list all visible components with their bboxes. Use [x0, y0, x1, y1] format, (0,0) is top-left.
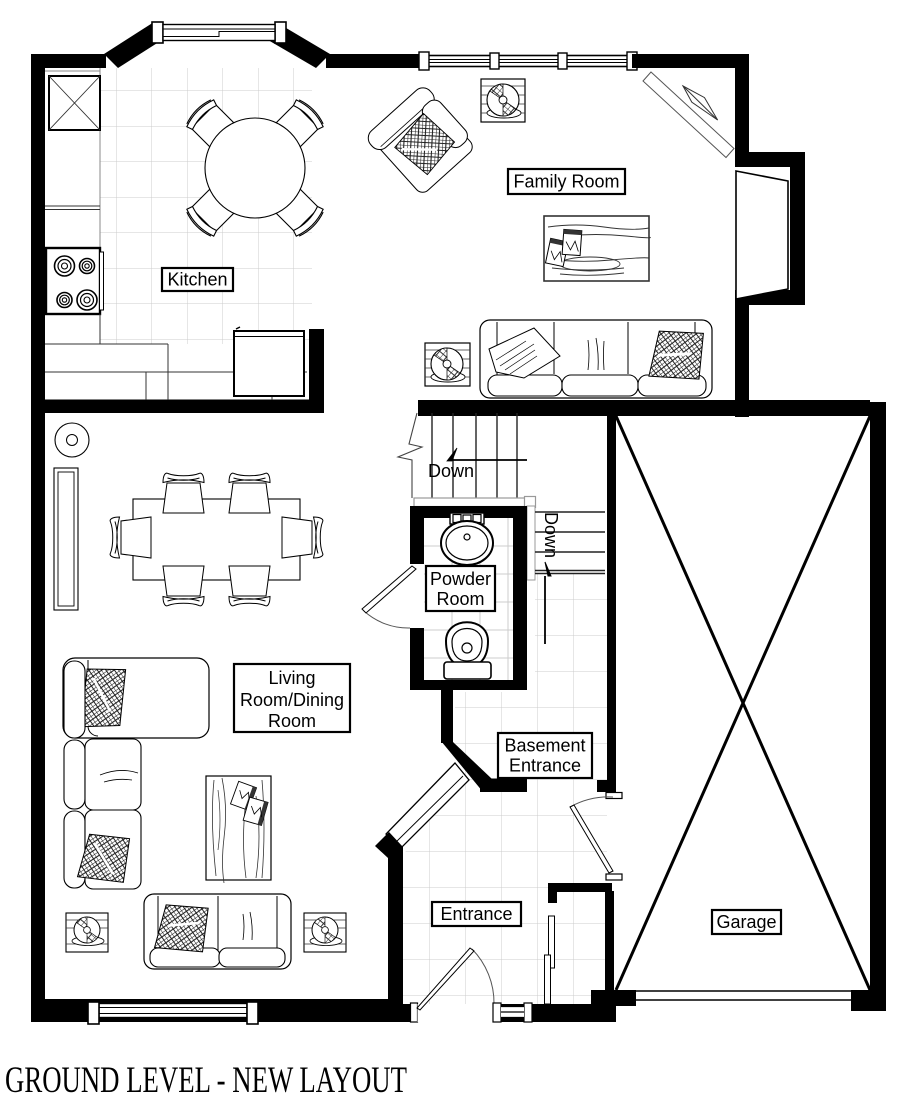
svg-text:Room/Dining: Room/Dining	[240, 690, 344, 710]
svg-text:Down: Down	[428, 461, 474, 481]
svg-text:Family Room: Family Room	[513, 172, 619, 192]
svg-text:Kitchen: Kitchen	[167, 270, 227, 290]
svg-text:Powder: Powder	[430, 569, 491, 589]
svg-text:Basement: Basement	[504, 736, 585, 756]
svg-text:GROUND LEVEL - NEW LAYOUT: GROUND LEVEL - NEW LAYOUT	[5, 1060, 407, 1101]
svg-text:Garage: Garage	[716, 912, 776, 932]
svg-text:Room: Room	[436, 589, 484, 609]
svg-text:Down: Down	[541, 512, 561, 558]
svg-text:Entrance: Entrance	[509, 756, 581, 776]
svg-text:Room: Room	[268, 711, 316, 731]
svg-text:Entrance: Entrance	[440, 904, 512, 924]
svg-text:Living: Living	[268, 668, 315, 688]
